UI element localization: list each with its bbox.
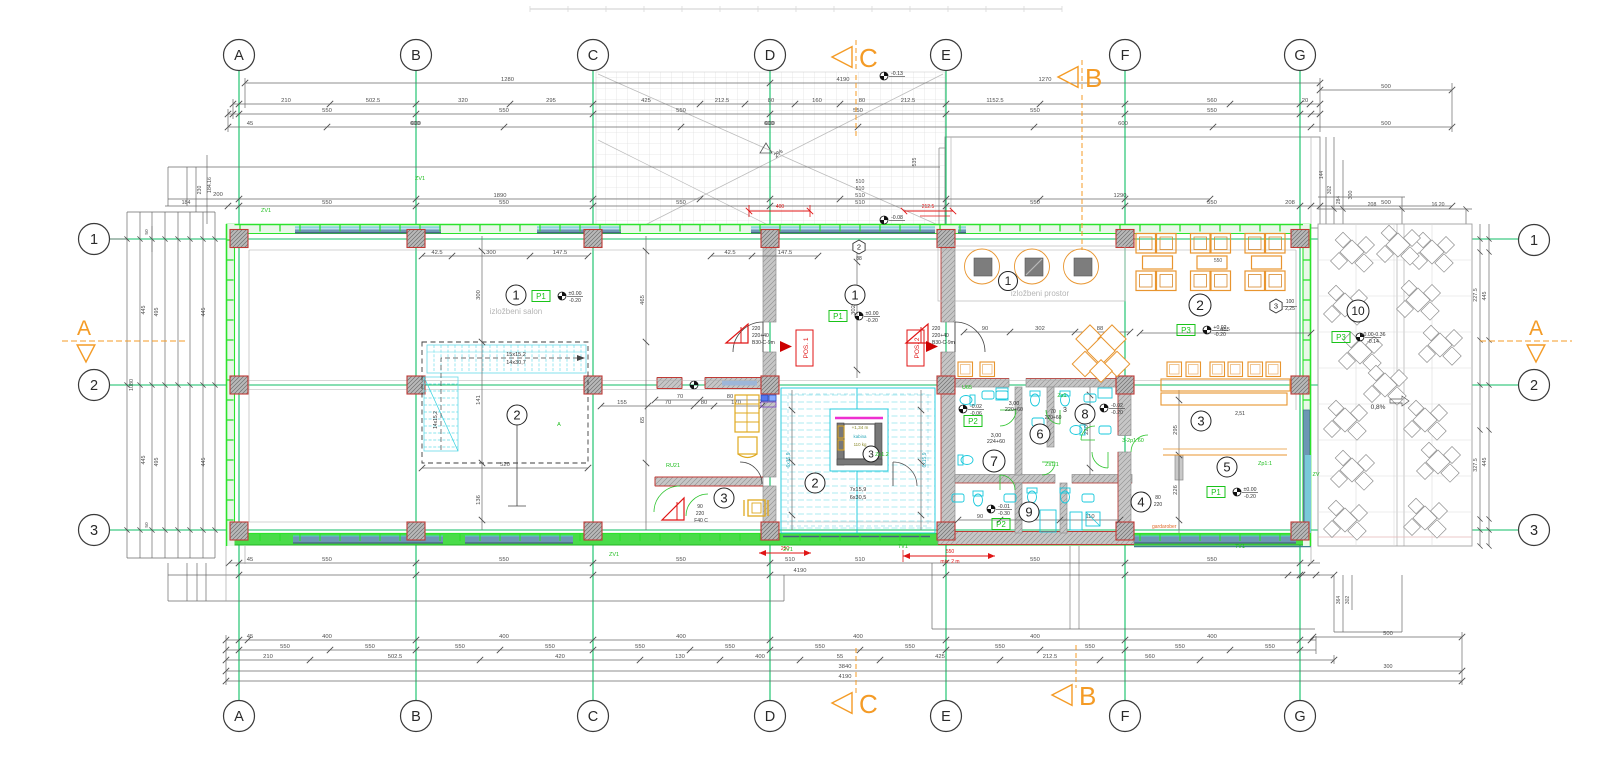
svg-text:6x15,9: 6x15,9 <box>786 452 792 467</box>
svg-text:-0.30: -0.30 <box>998 511 1010 517</box>
svg-text:550: 550 <box>1207 108 1217 114</box>
svg-text:C: C <box>588 48 598 64</box>
svg-text:495: 495 <box>154 458 160 467</box>
svg-text:400: 400 <box>1207 634 1217 640</box>
svg-text:212.5: 212.5 <box>922 204 935 210</box>
svg-text:147.5: 147.5 <box>778 250 793 256</box>
svg-text:Zs1.1: Zs1.1 <box>1045 462 1059 468</box>
svg-text:445: 445 <box>1482 292 1488 301</box>
svg-text:-0.14: -0.14 <box>1367 339 1379 345</box>
svg-text:220+60: 220+60 <box>1045 415 1062 421</box>
svg-text:550: 550 <box>499 557 509 563</box>
svg-text:550: 550 <box>1207 557 1217 563</box>
svg-text:izložbeni prostor: izložbeni prostor <box>1011 289 1070 298</box>
svg-text:445: 445 <box>201 458 207 467</box>
svg-text:A: A <box>557 422 561 428</box>
svg-text:4: 4 <box>1137 494 1144 509</box>
svg-text:227.5: 227.5 <box>1473 288 1479 302</box>
svg-text:302: 302 <box>1327 186 1333 195</box>
svg-text:445: 445 <box>141 306 147 315</box>
svg-text:8: 8 <box>1081 406 1088 421</box>
svg-text:3: 3 <box>868 449 874 460</box>
svg-text:C: C <box>859 689 878 719</box>
svg-text:70: 70 <box>677 394 683 400</box>
svg-text:510: 510 <box>855 193 865 199</box>
svg-text:15x15,2: 15x15,2 <box>506 352 526 358</box>
svg-text:88: 88 <box>1097 326 1103 332</box>
svg-text:550: 550 <box>545 644 555 650</box>
svg-text:A: A <box>234 48 244 64</box>
svg-text:42.5: 42.5 <box>431 250 442 256</box>
svg-text:90: 90 <box>697 504 703 510</box>
svg-text:POS. 2: POS. 2 <box>914 337 921 358</box>
svg-text:16 20: 16 20 <box>1432 202 1445 208</box>
svg-text:-0.20: -0.20 <box>1244 494 1256 500</box>
svg-text:1290: 1290 <box>1114 193 1127 199</box>
svg-text:510: 510 <box>855 200 865 206</box>
svg-text:E: E <box>941 709 951 725</box>
svg-text:510: 510 <box>856 186 865 192</box>
svg-text:550: 550 <box>322 200 332 206</box>
svg-text:-0.20: -0.20 <box>866 318 878 324</box>
svg-text:550: 550 <box>1265 644 1275 650</box>
svg-text:550: 550 <box>995 644 1005 650</box>
svg-text:1270: 1270 <box>1039 77 1052 83</box>
svg-text:70: 70 <box>665 400 671 406</box>
svg-text:295: 295 <box>546 98 556 104</box>
svg-text:510: 510 <box>785 557 795 563</box>
svg-text:400: 400 <box>853 634 863 640</box>
svg-text:230: 230 <box>197 186 203 195</box>
svg-text:88: 88 <box>856 256 862 262</box>
svg-text:ZV1: ZV1 <box>609 552 619 558</box>
svg-text:550: 550 <box>725 644 735 650</box>
svg-text:2: 2 <box>1196 297 1204 313</box>
svg-text:550: 550 <box>280 644 290 650</box>
svg-text:0,8%: 0,8% <box>1371 404 1386 411</box>
svg-text:±0.00: ±0.00 <box>866 311 879 317</box>
svg-text:-0.02: -0.02 <box>1111 403 1123 409</box>
svg-text:B: B <box>411 709 421 725</box>
svg-text:80: 80 <box>1155 495 1161 501</box>
svg-text:-0.06: -0.06 <box>970 411 982 417</box>
svg-text:-0.08: -0.08 <box>891 215 903 221</box>
svg-text:7V1: 7V1 <box>898 544 908 550</box>
svg-text:550: 550 <box>1207 200 1217 206</box>
svg-text:ZV1: ZV1 <box>261 208 271 214</box>
svg-text:141: 141 <box>476 395 482 405</box>
svg-text:550: 550 <box>676 108 686 114</box>
svg-text:G: G <box>1294 709 1305 725</box>
svg-text:550: 550 <box>1085 644 1095 650</box>
svg-text:1890: 1890 <box>494 193 507 199</box>
svg-text:9: 9 <box>1025 504 1032 519</box>
svg-text:Zs1.2: Zs1.2 <box>875 452 889 458</box>
svg-text:ZV: ZV <box>1312 472 1319 478</box>
svg-text:U65: U65 <box>962 385 972 391</box>
svg-text:400: 400 <box>755 654 765 660</box>
svg-text:3: 3 <box>90 523 98 539</box>
svg-text:110 kg: 110 kg <box>854 442 867 447</box>
svg-text:-0.01: -0.01 <box>998 504 1010 510</box>
svg-text:3: 3 <box>1063 407 1067 414</box>
svg-text:3: 3 <box>1530 523 1538 539</box>
svg-text:200: 200 <box>213 192 223 198</box>
svg-text:100: 100 <box>1286 299 1295 305</box>
svg-text:212.5: 212.5 <box>715 98 730 104</box>
svg-text:560: 560 <box>1207 98 1217 104</box>
svg-text:600: 600 <box>1118 121 1128 127</box>
svg-text:2,25: 2,25 <box>1285 306 1295 312</box>
svg-text:B: B <box>1085 63 1102 93</box>
svg-text:+0.02: +0.02 <box>1213 325 1226 331</box>
svg-text:300: 300 <box>486 250 496 256</box>
svg-text:500: 500 <box>1381 84 1391 90</box>
svg-text:550: 550 <box>322 557 332 563</box>
svg-text:14x30,7: 14x30,7 <box>506 360 526 366</box>
svg-text:550: 550 <box>1030 108 1040 114</box>
svg-text:302: 302 <box>1035 326 1045 332</box>
svg-text:1280: 1280 <box>501 77 514 83</box>
svg-text:P1: P1 <box>1211 488 1221 497</box>
svg-text:6: 6 <box>1036 426 1043 441</box>
svg-text:535: 535 <box>912 158 918 167</box>
svg-text:3-2p1:60: 3-2p1:60 <box>1122 438 1144 444</box>
svg-text:10: 10 <box>1351 304 1365 318</box>
svg-text:80: 80 <box>727 394 733 400</box>
svg-text:550: 550 <box>635 644 645 650</box>
svg-text:80: 80 <box>768 98 774 104</box>
svg-text:184.16: 184.16 <box>207 177 213 193</box>
svg-text:3: 3 <box>1274 302 1278 311</box>
svg-text:520: 520 <box>500 462 510 468</box>
svg-text:510: 510 <box>855 557 865 563</box>
svg-text:45: 45 <box>247 121 253 127</box>
svg-text:130: 130 <box>675 654 685 660</box>
svg-text:50: 50 <box>144 522 150 528</box>
svg-text:550: 550 <box>905 644 915 650</box>
svg-text:B30-C-9m: B30-C-9m <box>752 340 775 346</box>
svg-text:55: 55 <box>837 654 843 660</box>
svg-text:550: 550 <box>946 549 955 555</box>
svg-text:65: 65 <box>640 417 646 423</box>
svg-text:300: 300 <box>1384 664 1393 670</box>
svg-text:184: 184 <box>182 200 191 206</box>
svg-text:+0.00-0.36: +0.00-0.36 <box>1361 332 1386 338</box>
svg-text:226: 226 <box>1173 485 1179 495</box>
svg-text:-0.20: -0.20 <box>1111 410 1123 416</box>
svg-text:550: 550 <box>499 108 509 114</box>
svg-text:220: 220 <box>1154 502 1163 508</box>
svg-text:7V1: 7V1 <box>1235 544 1245 550</box>
svg-text:C: C <box>859 43 878 73</box>
svg-text:420: 420 <box>555 654 565 660</box>
svg-text:220: 220 <box>696 511 705 517</box>
svg-text:2: 2 <box>857 243 861 252</box>
svg-text:2,51: 2,51 <box>1235 411 1245 417</box>
svg-text:gardarober: gardarober <box>1152 524 1177 530</box>
svg-text:2: 2 <box>90 378 98 394</box>
svg-text:1: 1 <box>1530 233 1538 249</box>
svg-text:400: 400 <box>1030 634 1040 640</box>
svg-text:495: 495 <box>154 308 160 317</box>
svg-text:RU21: RU21 <box>666 463 680 469</box>
svg-text:1080: 1080 <box>129 379 135 391</box>
svg-text:445: 445 <box>1482 458 1488 467</box>
svg-text:E: E <box>941 48 951 64</box>
svg-text:2: 2 <box>513 407 520 422</box>
svg-text:min. 2 m: min. 2 m <box>940 559 959 565</box>
svg-text:1: 1 <box>512 287 519 302</box>
svg-text:4190: 4190 <box>839 674 852 680</box>
svg-text:80: 80 <box>859 98 865 104</box>
svg-text:212.5: 212.5 <box>1043 654 1058 660</box>
svg-text:208: 208 <box>1368 202 1377 208</box>
svg-text:300: 300 <box>1348 191 1354 200</box>
svg-text:550: 550 <box>322 108 332 114</box>
svg-text:P3: P3 <box>1336 333 1346 342</box>
svg-text:500: 500 <box>1381 121 1391 127</box>
svg-text:510: 510 <box>856 179 865 185</box>
svg-text:P2: P2 <box>996 520 1006 529</box>
svg-text:550: 550 <box>1214 258 1223 264</box>
svg-text:P1: P1 <box>536 292 546 301</box>
svg-text:A: A <box>234 709 244 725</box>
svg-text:550: 550 <box>499 200 509 206</box>
svg-text:224+60: 224+60 <box>987 439 1005 445</box>
svg-text:4190: 4190 <box>794 568 807 574</box>
svg-text:20: 20 <box>1302 98 1308 104</box>
svg-text:-0.13: -0.13 <box>891 71 903 77</box>
svg-text:ZV1: ZV1 <box>415 176 425 182</box>
svg-text:F40 C: F40 C <box>694 518 708 524</box>
svg-text:445: 445 <box>141 456 147 465</box>
svg-text:170: 170 <box>731 400 741 406</box>
svg-text:400: 400 <box>499 634 509 640</box>
svg-text:B30-C-9m: B30-C-9m <box>932 340 955 346</box>
svg-text:-0.02: -0.02 <box>970 404 982 410</box>
svg-text:210: 210 <box>263 654 273 660</box>
svg-text:6x30,5: 6x30,5 <box>850 495 867 501</box>
svg-text:220: 220 <box>932 326 941 332</box>
svg-text:208: 208 <box>1285 200 1295 206</box>
svg-text:50: 50 <box>144 229 150 235</box>
svg-text:4190: 4190 <box>837 77 850 83</box>
svg-text:550: 550 <box>1030 200 1040 206</box>
svg-text:80: 80 <box>701 400 707 406</box>
svg-text:212.5: 212.5 <box>901 98 916 104</box>
svg-text:300: 300 <box>476 290 482 300</box>
svg-text:160: 160 <box>812 98 822 104</box>
svg-text:220+40: 220+40 <box>752 333 769 339</box>
svg-text:500: 500 <box>1381 200 1391 206</box>
svg-text:400: 400 <box>322 634 332 640</box>
svg-text:P2: P2 <box>968 417 978 426</box>
svg-text:F: F <box>1121 709 1130 725</box>
svg-text:550: 550 <box>815 644 825 650</box>
svg-text:550: 550 <box>455 644 465 650</box>
svg-text:Zp1:1: Zp1:1 <box>1258 461 1272 467</box>
svg-text:220+40: 220+40 <box>932 333 949 339</box>
svg-text:A: A <box>1529 317 1543 340</box>
svg-text:220: 220 <box>752 326 761 332</box>
svg-text:POS. 1: POS. 1 <box>803 337 810 358</box>
svg-text:2V1: 2V1 <box>783 547 793 553</box>
svg-text:155: 155 <box>617 400 627 406</box>
svg-text:425: 425 <box>641 98 651 104</box>
svg-text:kabina: kabina <box>854 434 867 439</box>
svg-text:7: 7 <box>990 453 998 469</box>
svg-text:502.5: 502.5 <box>388 654 403 660</box>
svg-text:6x15,9: 6x15,9 <box>922 452 928 467</box>
svg-text:45: 45 <box>247 557 253 563</box>
svg-text:327.5: 327.5 <box>1473 458 1479 472</box>
svg-text:14x15,2: 14x15,2 <box>433 411 439 429</box>
svg-text:±0.00: ±0.00 <box>569 291 582 297</box>
svg-text:550: 550 <box>1175 644 1185 650</box>
svg-text:502.5: 502.5 <box>366 98 381 104</box>
svg-text:550: 550 <box>853 108 863 114</box>
svg-text:400: 400 <box>776 204 785 210</box>
svg-text:+1,34 m: +1,34 m <box>852 425 869 430</box>
svg-text:3: 3 <box>1197 413 1204 428</box>
svg-text:550: 550 <box>1030 557 1040 563</box>
svg-text:-0.20: -0.20 <box>569 298 581 304</box>
svg-text:90: 90 <box>977 514 983 520</box>
svg-text:P3: P3 <box>1181 326 1191 335</box>
svg-text:1: 1 <box>851 287 858 302</box>
svg-text:220+60: 220+60 <box>1005 407 1023 413</box>
svg-text:550: 550 <box>676 557 686 563</box>
svg-text:P1: P1 <box>833 312 843 321</box>
svg-text:2: 2 <box>811 475 818 490</box>
svg-text:2: 2 <box>1530 378 1538 394</box>
svg-text:7x15,9: 7x15,9 <box>850 487 867 493</box>
svg-text:320: 320 <box>458 98 468 104</box>
svg-text:560: 560 <box>1145 654 1155 660</box>
svg-text:1: 1 <box>1005 274 1012 288</box>
svg-text:B: B <box>1079 681 1096 711</box>
svg-text:136: 136 <box>476 495 482 505</box>
svg-text:42.5: 42.5 <box>724 250 735 256</box>
svg-text:445: 445 <box>201 308 207 317</box>
svg-text:G: G <box>1294 48 1305 64</box>
svg-text:1152.5: 1152.5 <box>986 98 1003 104</box>
svg-text:600: 600 <box>411 121 421 127</box>
svg-text:5: 5 <box>1223 459 1230 474</box>
svg-text:400: 400 <box>676 634 686 640</box>
svg-text:45: 45 <box>247 634 253 640</box>
svg-text:425: 425 <box>935 654 945 660</box>
svg-text:izložbeni salon: izložbeni salon <box>490 307 542 316</box>
svg-text:-0.20: -0.20 <box>1214 332 1226 338</box>
svg-text:364: 364 <box>1336 596 1342 605</box>
svg-text:550: 550 <box>365 644 375 650</box>
svg-text:3: 3 <box>720 490 727 505</box>
svg-text:302: 302 <box>1345 596 1351 605</box>
svg-text:465: 465 <box>640 295 646 305</box>
svg-text:550: 550 <box>676 200 686 206</box>
svg-text:Zs1: Zs1 <box>1057 393 1066 399</box>
svg-text:295: 295 <box>1173 425 1179 435</box>
svg-text:600: 600 <box>765 121 775 127</box>
svg-text:3840: 3840 <box>839 664 852 670</box>
svg-text:90: 90 <box>982 326 988 332</box>
svg-text:±0.00: ±0.00 <box>1244 487 1257 493</box>
svg-text:147.5: 147.5 <box>553 250 568 256</box>
svg-text:210: 210 <box>281 98 291 104</box>
svg-text:144: 144 <box>1319 171 1325 180</box>
svg-text:A: A <box>77 317 91 340</box>
svg-text:D: D <box>765 709 775 725</box>
svg-text:1: 1 <box>90 232 98 248</box>
svg-text:B: B <box>411 48 421 64</box>
svg-text:D: D <box>765 48 775 64</box>
svg-text:F: F <box>1121 48 1130 64</box>
svg-text:C: C <box>588 709 598 725</box>
